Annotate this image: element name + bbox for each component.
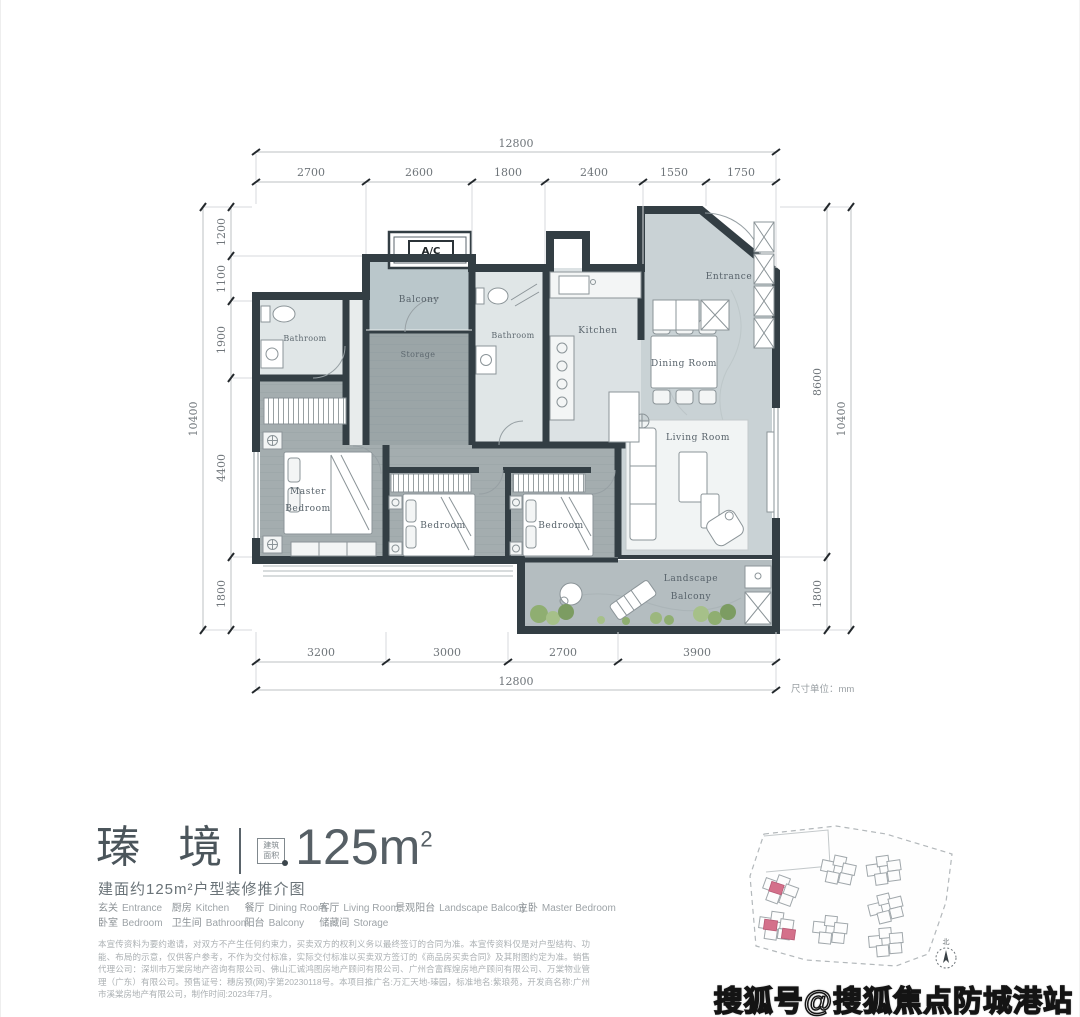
project-name: 瑧 境 <box>96 824 235 872</box>
legend-bathroom: 卫生间Bathroom <box>172 914 242 929</box>
toilet <box>476 288 484 304</box>
dim-left-seg-0: 1200 <box>215 218 228 246</box>
legend-master-bedroom: 主卧Master Bedroom <box>518 899 616 914</box>
label-living: Living Room <box>666 433 730 443</box>
badge-dot-icon <box>282 860 288 866</box>
vanity <box>261 340 283 368</box>
area-badge-line1: 建筑 <box>263 841 279 850</box>
dim-left-seg-4: 1800 <box>215 580 228 608</box>
dim-top-seg-0: 2700 <box>297 166 325 179</box>
site-plan-map: 北 <box>736 810 991 985</box>
plan-subtitle: 建面约125m²户型装修推介图 <box>98 878 306 899</box>
north-compass-icon: 北 <box>936 938 956 968</box>
legend-landscape-balcony: 景观阳台Landscape Balcony <box>395 899 515 914</box>
dim-left-total: 10400 <box>187 402 200 437</box>
label-bathroom-mid: Bathroom <box>491 331 534 340</box>
sofa <box>630 428 656 540</box>
floor-plan-drawing: A/C <box>1 0 1080 770</box>
label-storage: Storage <box>401 350 436 359</box>
area-badge-line2: 面积 <box>263 851 279 860</box>
legend-living: 客厅Living Room <box>319 899 392 914</box>
vanity <box>476 346 496 374</box>
label-balcony-top: Balcony <box>399 295 440 305</box>
legend-storage: 储藏间Storage <box>319 914 388 929</box>
dim-left-seg-3: 4400 <box>215 454 228 482</box>
title-block: 瑧 境 建筑 面积 125m2 <box>96 824 433 874</box>
dim-bottom-total: 12800 <box>499 675 534 688</box>
legend-dining: 餐厅Dining Room <box>245 899 317 914</box>
legend-row-2: 卧室Bedroom 卫生间Bathroom 阳台Balcony 储藏间Stora… <box>98 914 616 929</box>
dim-bottom-seg-0: 3200 <box>307 646 335 659</box>
room-legend: 玄关Entrance 厨房Kitchen 餐厅Dining Room 客厅Liv… <box>98 899 616 929</box>
dim-left-seg-1: 1100 <box>215 265 228 293</box>
page: A/C <box>0 0 1080 1017</box>
dim-bottom-seg-2: 2700 <box>549 646 577 659</box>
dim-top-seg-1: 2600 <box>405 166 433 179</box>
dim-top-seg-4: 1550 <box>660 166 688 179</box>
wash-basin <box>745 566 771 588</box>
label-landscape-1: Landscape <box>664 574 718 584</box>
dim-right-seg-0: 8600 <box>811 368 824 396</box>
label-kitchen: Kitchen <box>578 326 617 336</box>
label-bedroom-mid: Bedroom <box>420 521 466 531</box>
dim-left-seg-2: 1900 <box>215 326 228 354</box>
dimension-unit-note: 尺寸单位：mm <box>791 683 854 695</box>
label-entrance: Entrance <box>706 272 753 282</box>
north-label: 北 <box>943 938 950 946</box>
dim-right-total: 10400 <box>835 402 848 437</box>
toilet <box>261 306 270 322</box>
label-dining: Dining Room <box>651 359 717 369</box>
legend-entrance: 玄关Entrance <box>98 899 169 914</box>
dim-bottom-seg-3: 3900 <box>683 646 711 659</box>
dim-top-seg-2: 1800 <box>494 166 522 179</box>
dim-top-seg-3: 2400 <box>580 166 608 179</box>
master-dresser <box>291 542 376 556</box>
dim-top-seg-5: 1750 <box>727 166 755 179</box>
legend-kitchen: 厨房Kitchen <box>172 899 242 914</box>
dim-top-total: 12800 <box>499 137 534 150</box>
round-table <box>560 583 582 605</box>
legend-balcony: 阳台Balcony <box>245 914 317 929</box>
label-master-1: Master <box>290 487 326 497</box>
dim-bottom-seg-1: 3000 <box>433 646 461 659</box>
area-value: 125m2 <box>295 822 432 872</box>
sohu-watermark: 搜狐号@搜狐焦点防城港站 <box>714 978 1073 1017</box>
label-bedroom-right: Bedroom <box>538 521 584 531</box>
legal-disclaimer: 本宣传资料为要约邀请，对双方不产生任何约束力，买卖双方的权利义务以最终签订的合同… <box>98 938 590 1001</box>
dim-right-seg-1: 1800 <box>811 580 824 608</box>
legend-row-1: 玄关Entrance 厨房Kitchen 餐厅Dining Room 客厅Liv… <box>98 899 616 914</box>
legend-bedroom: 卧室Bedroom <box>98 914 169 929</box>
label-landscape-2: Balcony <box>671 592 712 602</box>
label-master-2: Bedroom <box>285 504 331 514</box>
title-divider <box>239 828 241 874</box>
area-badge: 建筑 面积 <box>257 838 285 864</box>
kitchen-cabinet <box>609 392 639 442</box>
tv-console <box>767 432 774 512</box>
ac-platform: A/C <box>389 232 471 268</box>
label-bathroom-left: Bathroom <box>283 334 326 343</box>
kitchen-sink <box>559 276 589 294</box>
